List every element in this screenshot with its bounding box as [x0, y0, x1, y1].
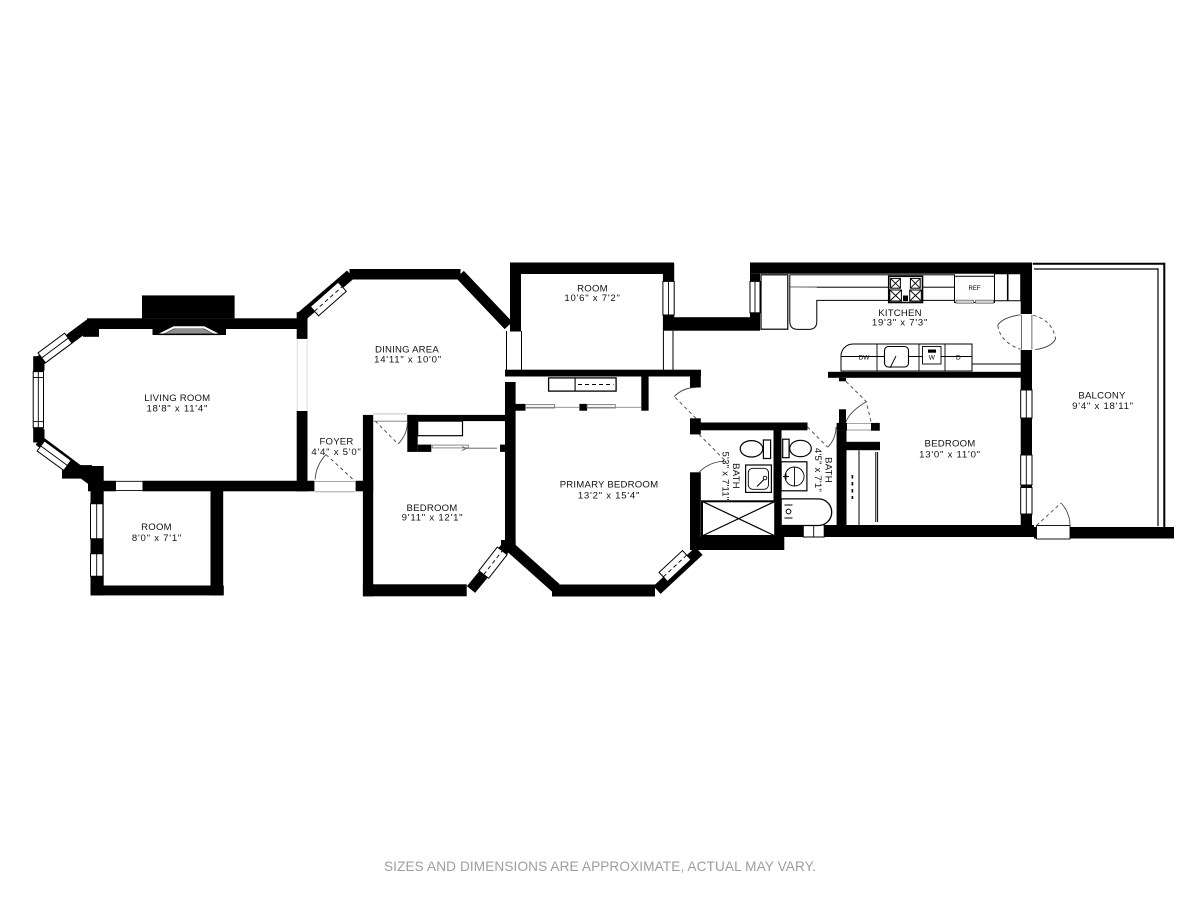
svg-text:8'0" x 7'1": 8'0" x 7'1" [132, 533, 182, 544]
svg-text:W: W [929, 355, 936, 362]
svg-text:18'8" x 11'4": 18'8" x 11'4" [146, 404, 208, 415]
svg-text:LIVING ROOM: LIVING ROOM [144, 393, 210, 404]
svg-text:4'5" x 7'1": 4'5" x 7'1" [812, 448, 823, 492]
svg-text:REF: REF [969, 286, 981, 292]
svg-text:PRIMARY BEDROOM: PRIMARY BEDROOM [560, 480, 659, 491]
svg-text:4'4" x 5'0": 4'4" x 5'0" [311, 447, 361, 458]
svg-text:14'11" x 10'0": 14'11" x 10'0" [374, 354, 442, 365]
svg-text:DW: DW [859, 355, 871, 362]
svg-text:SIZES AND DIMENSIONS ARE APPRO: SIZES AND DIMENSIONS ARE APPROXIMATE, AC… [384, 859, 816, 874]
svg-text:5'3" x 7'11": 5'3" x 7'11" [720, 452, 731, 501]
svg-text:BEDROOM: BEDROOM [925, 439, 976, 450]
svg-text:13'0" x 11'0": 13'0" x 11'0" [919, 449, 981, 460]
svg-text:9'11" x 12'1": 9'11" x 12'1" [402, 512, 464, 523]
svg-text:10'6" x 7'2": 10'6" x 7'2" [564, 293, 620, 304]
svg-text:19'3" x 7'3": 19'3" x 7'3" [872, 317, 928, 328]
svg-text:FOYER: FOYER [319, 436, 353, 447]
svg-text:ROOM: ROOM [141, 522, 172, 533]
svg-text:BATH: BATH [822, 457, 833, 483]
svg-text:13'2" x 15'4": 13'2" x 15'4" [578, 491, 640, 502]
svg-text:9'4" x 18'11": 9'4" x 18'11" [1072, 401, 1134, 412]
svg-text:BALCONY: BALCONY [1078, 390, 1126, 401]
svg-text:BATH: BATH [730, 463, 741, 489]
svg-text:D: D [956, 355, 961, 362]
